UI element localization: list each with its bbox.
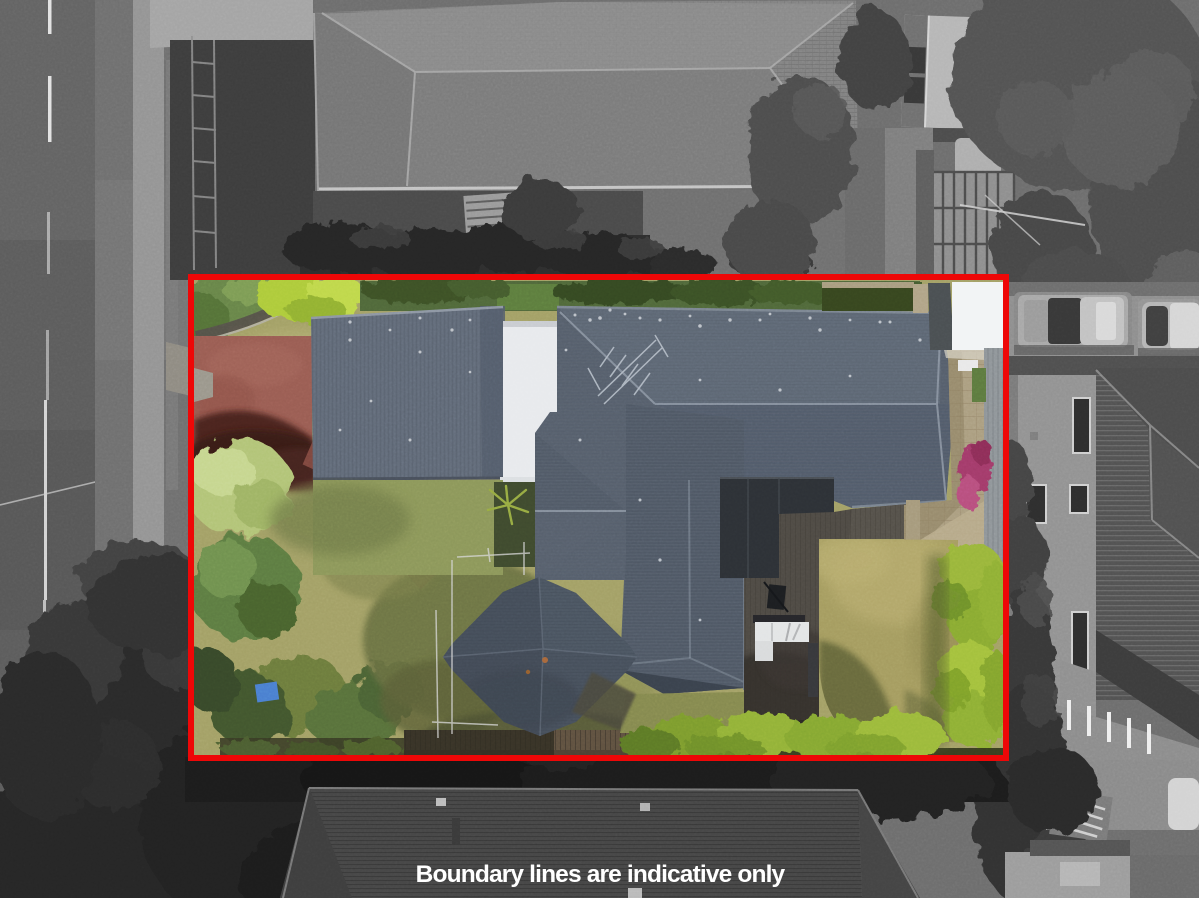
svg-text:Boundary lines are indicative: Boundary lines are indicative only bbox=[416, 861, 786, 888]
